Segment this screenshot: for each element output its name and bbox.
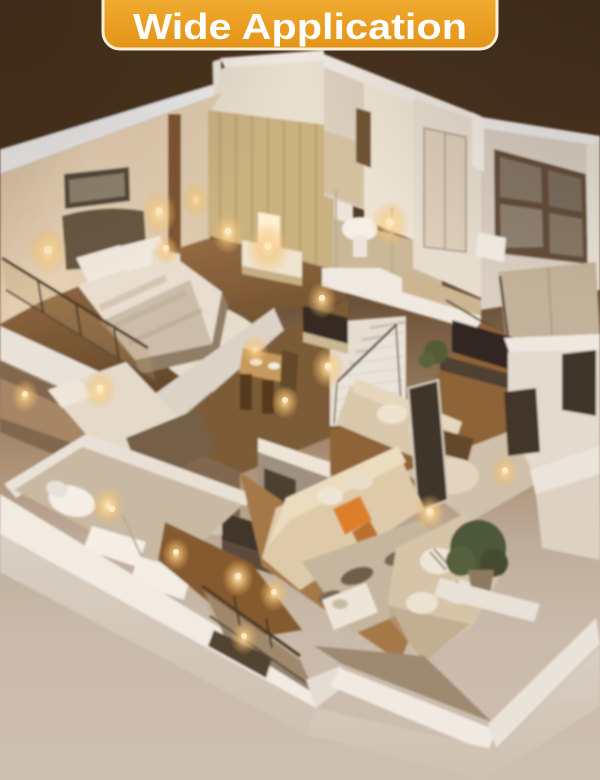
svg-text:Wide Application: Wide Application	[133, 6, 467, 47]
